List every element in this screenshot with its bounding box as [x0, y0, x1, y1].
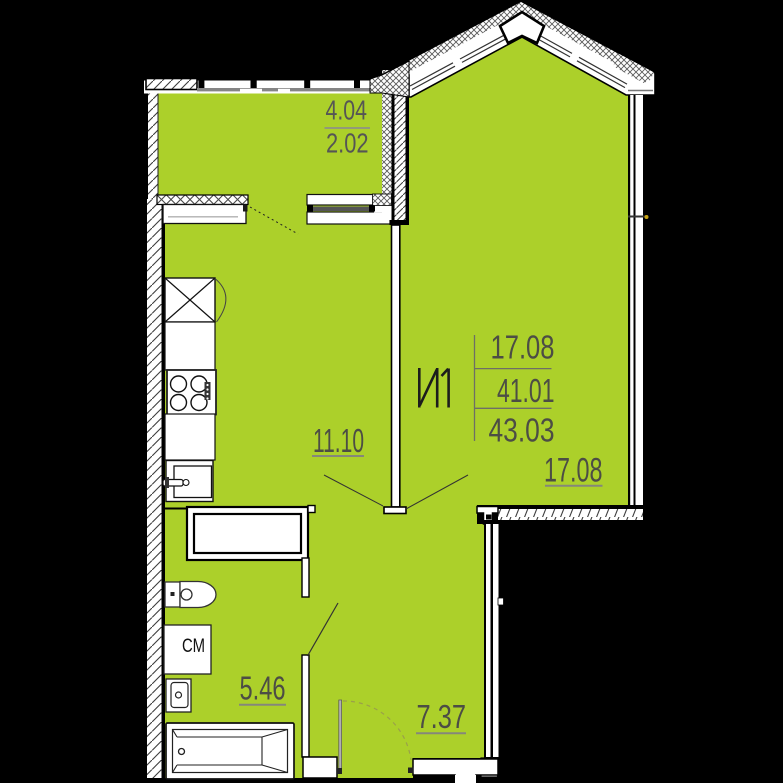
- svg-text:43.03: 43.03: [489, 412, 555, 449]
- svg-text:41.01: 41.01: [497, 372, 555, 409]
- svg-text:5.46: 5.46: [240, 670, 286, 707]
- svg-text:11.10: 11.10: [313, 422, 364, 459]
- svg-text:4.04: 4.04: [326, 95, 368, 126]
- svg-text:СМ: СМ: [182, 636, 205, 657]
- svg-text:7.37: 7.37: [417, 698, 467, 735]
- svg-text:17.08: 17.08: [491, 329, 555, 366]
- svg-text:17.08: 17.08: [544, 452, 603, 490]
- svg-text:2.02: 2.02: [326, 128, 369, 159]
